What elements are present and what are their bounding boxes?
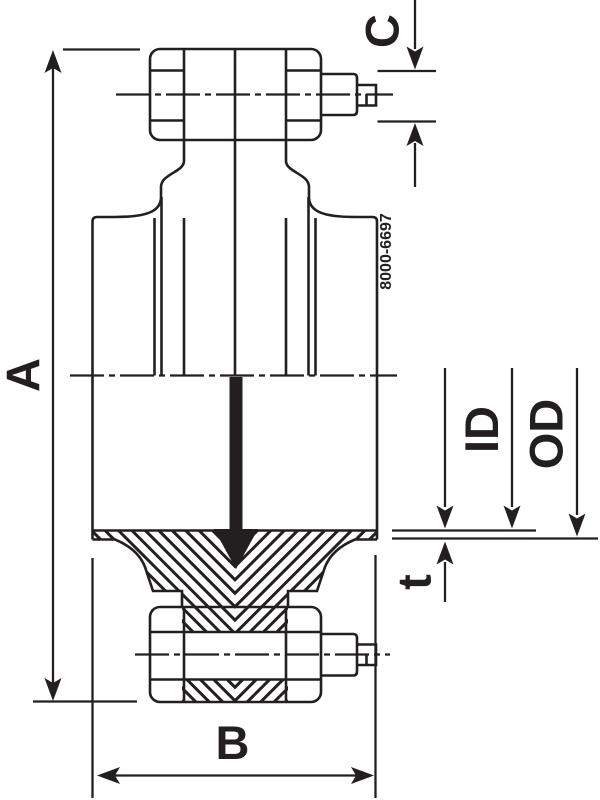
svg-text:OD: OD — [520, 399, 573, 470]
svg-text:B: B — [216, 716, 250, 769]
svg-text:ID: ID — [455, 406, 508, 453]
svg-text:C: C — [356, 14, 409, 48]
svg-text:8000-6697: 8000-6697 — [378, 213, 395, 290]
svg-text:t: t — [388, 574, 441, 590]
svg-text:A: A — [0, 358, 50, 392]
